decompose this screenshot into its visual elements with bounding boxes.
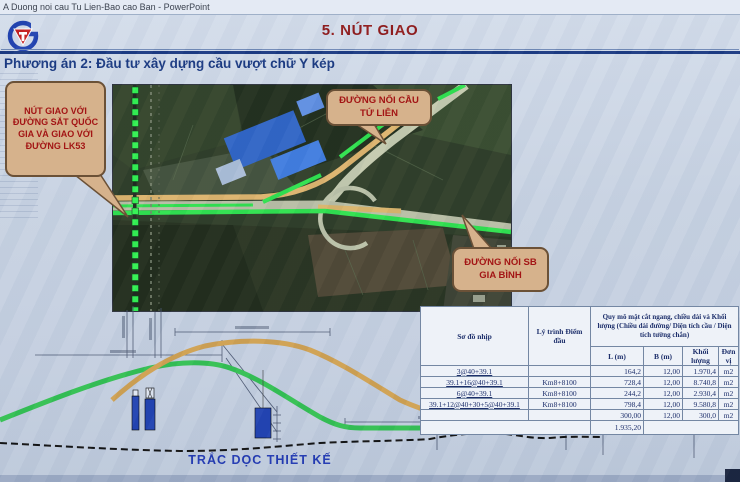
screen-corner-artifact — [725, 469, 740, 482]
screen: A Duong noi cau Tu Lien-Bao cao Ban - Po… — [0, 0, 740, 482]
subcol-B: B (m) — [644, 347, 683, 366]
callout-giabinh-road[interactable]: ĐƯỜNG NỐI SB GIA BÌNH — [452, 247, 549, 292]
bridge-piers — [132, 370, 271, 438]
subcol-L: L (m) — [591, 347, 644, 366]
subcol-volume: Khối lượng — [683, 347, 719, 366]
callout-railway-tail — [60, 171, 140, 221]
callout-railway-label: NÚT GIAO VỚI ĐƯỜNG SẮT QUỐC GIA VÀ GIAO … — [10, 106, 101, 153]
quantity-table[interactable]: Sơ đồ nhịp Lý trình Điểm đầu Quy mô mặt … — [420, 306, 739, 435]
profile-caption: TRẮC DỌC THIẾT KẾ — [150, 453, 370, 467]
col-header-span: Sơ đồ nhịp — [421, 307, 529, 366]
col-header-scope: Quy mô mặt cắt ngang, chiều dài và Khối … — [591, 307, 739, 347]
table-row: 39.1+12@40+30+5@40+39.1 Km8+8100 798,4 1… — [421, 399, 739, 410]
window-title: A Duong noi cau Tu Lien-Bao cao Ban - Po… — [3, 2, 210, 12]
callout-tulien-road[interactable]: ĐƯỜNG NỐI CẦU TỨ LIÊN — [326, 89, 432, 126]
subcol-unit: Đơn vị — [719, 347, 739, 366]
screen-bottom-band — [0, 475, 740, 482]
col-header-km: Lý trình Điểm đầu — [529, 307, 591, 366]
callout-giabinh-label: ĐƯỜNG NỐI SB GIA BÌNH — [457, 257, 544, 282]
slide-subtitle: Phương án 2: Đầu tư xây dựng cầu vượt ch… — [4, 56, 604, 71]
table-total-row: 1.935,20 — [421, 421, 739, 435]
total-length-value: 1.935,20 — [591, 421, 644, 435]
slide-canvas[interactable]: 5. NÚT GIAO Phương án 2: Đầu tư xây dựng… — [0, 15, 740, 482]
window-titlebar[interactable]: A Duong noi cau Tu Lien-Bao cao Ban - Po… — [0, 0, 740, 15]
callout-railway-junction[interactable]: NÚT GIAO VỚI ĐƯỜNG SẮT QUỐC GIA VÀ GIAO … — [5, 81, 106, 177]
table-row: 300,00 12,00 300,0 m2 — [421, 410, 739, 421]
table-row: 6@40+39.1 Km8+8100 244,2 12,00 2.930,4 m… — [421, 388, 739, 399]
title-divider — [0, 51, 740, 54]
callout-giabinh-tail — [450, 213, 500, 251]
table-row: 39.1+16@40+39.1 Km8+8100 728,4 12,00 8.7… — [421, 377, 739, 388]
page-title: 5. NÚT GIAO — [0, 22, 740, 39]
table-row: 3@40+39.1 164,2 12,00 1.970,4 m2 — [421, 366, 739, 377]
ground-line-dashed — [0, 433, 603, 451]
callout-tulien-label: ĐƯỜNG NỐI CẦU TỨ LIÊN — [331, 95, 427, 120]
